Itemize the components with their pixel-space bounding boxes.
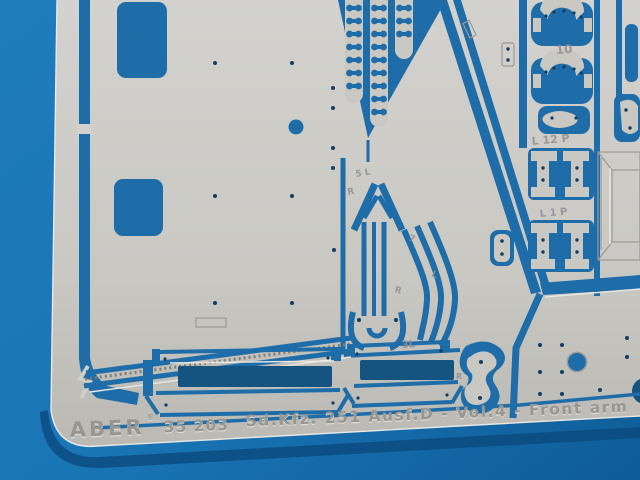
slot-cutout	[360, 360, 454, 380]
brand-text: ABER	[69, 415, 145, 442]
part-number-label: R	[456, 372, 462, 381]
rectangular-cutout	[117, 2, 167, 78]
catalog-number-text: 35 203	[163, 416, 229, 436]
round-hole	[568, 353, 586, 371]
pe-fret-photo: 10 L 12 P L 1 P 5 L R 7 L R 3L R ABER ® …	[0, 0, 640, 480]
round-hole	[289, 120, 304, 135]
sprue-tab	[76, 124, 93, 134]
part-number-label: 10	[555, 42, 573, 57]
photo-canvas: 10 L 12 P L 1 P 5 L R 7 L R 3L R ABER ® …	[0, 0, 640, 480]
slot-cutout	[625, 24, 638, 82]
slot-cutout	[178, 366, 332, 387]
rectangular-cutout	[114, 179, 163, 236]
registered-mark: ®	[146, 413, 154, 422]
part-number-label: 3L	[401, 339, 416, 351]
